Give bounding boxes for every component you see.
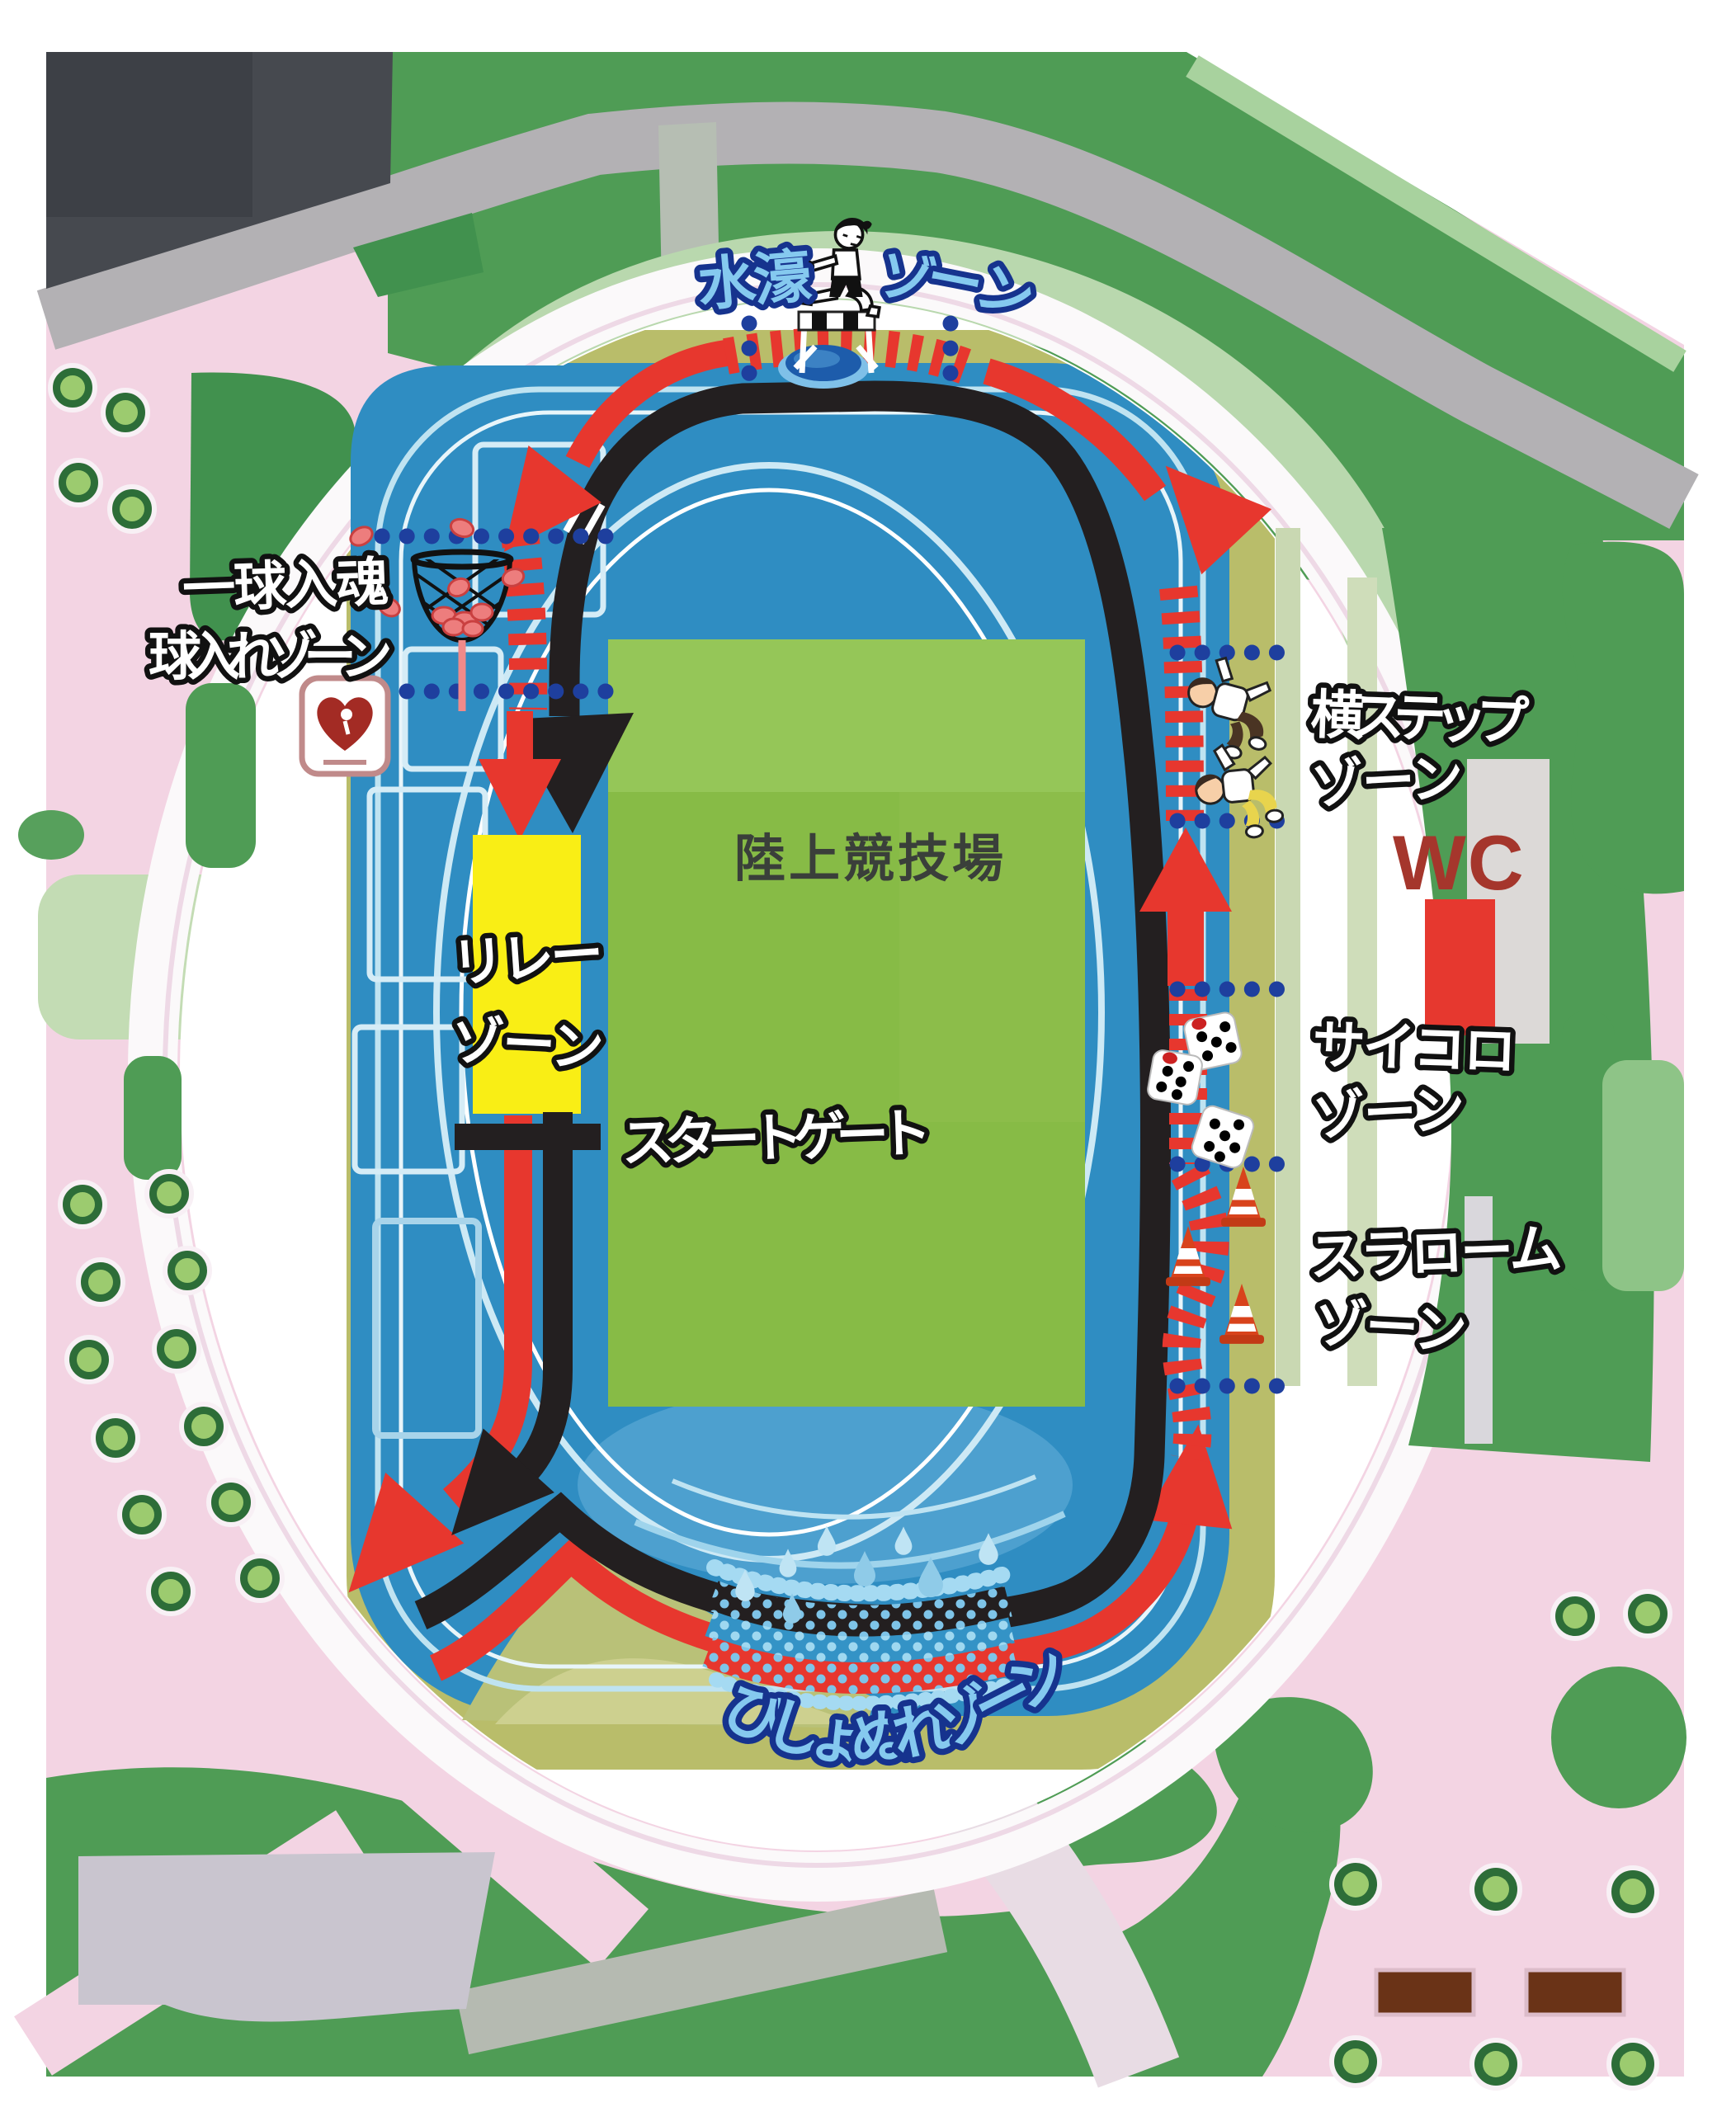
svg-text:ゾーン: ゾーン [1313, 1294, 1466, 1360]
svg-text:横ステップ: 横ステップ [1310, 685, 1530, 752]
svg-text:水濠: 水濠 [696, 243, 814, 318]
svg-text:サイコロ: サイコロ [1312, 1015, 1515, 1081]
svg-text:リレー: リレー [450, 924, 602, 993]
svg-text:陸上競技場: 陸上競技場 [734, 831, 1007, 888]
svg-text:ゾーン: ゾーン [1309, 748, 1463, 815]
svg-text:スタートゲート: スタートゲート [620, 1103, 926, 1173]
svg-text:一球入魂: 一球入魂 [182, 552, 389, 619]
svg-text:WC: WC [1393, 819, 1526, 906]
svg-text:スラローム: スラローム [1309, 1219, 1561, 1287]
svg-text:ゾーン: ゾーン [1311, 1080, 1465, 1147]
svg-text:球入れゾーン: 球入れゾーン [149, 627, 390, 686]
svg-text:ゾーン: ゾーン [450, 1011, 603, 1077]
